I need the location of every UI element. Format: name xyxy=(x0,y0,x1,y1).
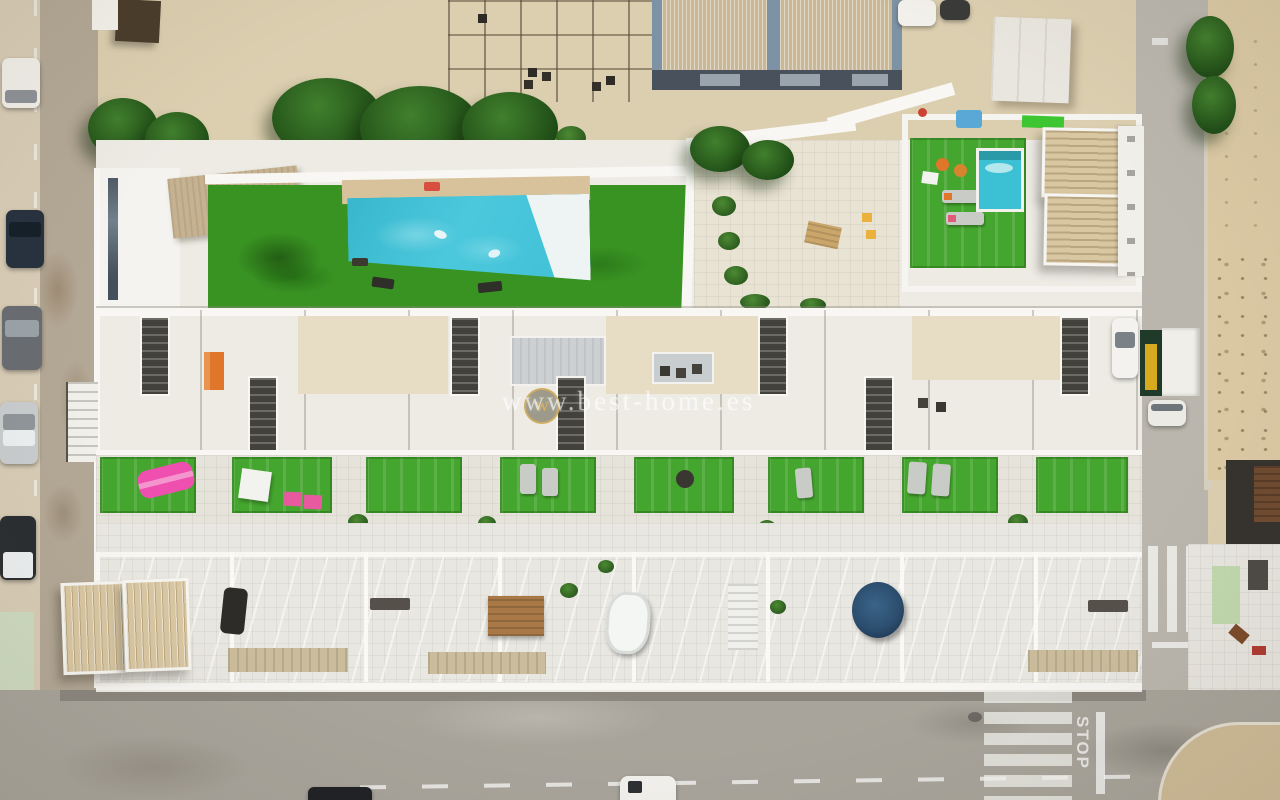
bench xyxy=(1088,600,1128,612)
sun-lounger xyxy=(542,468,558,496)
corner-lawn xyxy=(1212,566,1240,624)
orange-awning xyxy=(204,352,224,390)
terrace-shrub xyxy=(712,196,736,216)
trees-sand-edge xyxy=(1192,76,1236,134)
storage-box xyxy=(1028,650,1138,672)
sun-lounger xyxy=(520,464,536,494)
orange-pouf xyxy=(936,158,949,171)
storage-box xyxy=(228,648,348,672)
sidewalk-green-patch xyxy=(0,612,34,690)
red-towel xyxy=(424,182,440,191)
truck-cargo-yellow xyxy=(1145,344,1157,390)
patio-plant xyxy=(560,583,578,598)
blue-spa-pool xyxy=(852,582,904,638)
stairwell xyxy=(250,378,276,454)
roof-patio xyxy=(298,316,448,394)
complex-bottom-wall xyxy=(96,682,1142,690)
palm-shadow-on-lawn xyxy=(236,232,322,284)
car-windshield xyxy=(3,414,35,430)
car-sunroof xyxy=(628,781,642,793)
sun-lounger xyxy=(907,461,927,494)
van-by-building xyxy=(898,0,936,26)
building-door xyxy=(700,74,740,86)
building-roof-left xyxy=(662,0,767,70)
parked-car-two-tone xyxy=(0,516,36,580)
yellow-chair xyxy=(862,213,872,222)
parked-car-navy xyxy=(6,210,44,268)
car-windshield xyxy=(5,320,39,337)
corner-doorway xyxy=(1248,560,1268,590)
red-doormat xyxy=(1252,646,1266,655)
poolside-chair xyxy=(352,258,368,266)
lounger-cushion xyxy=(944,193,952,200)
manhole xyxy=(968,712,982,722)
small-pool-step xyxy=(979,151,1021,160)
trees-sand-edge xyxy=(1186,16,1234,78)
utility-strip xyxy=(1118,126,1144,276)
roof-patio xyxy=(912,316,1060,380)
white-pad xyxy=(921,171,939,185)
building-door xyxy=(852,74,888,86)
orange-pouf xyxy=(954,164,967,177)
truck-cab xyxy=(1148,400,1186,426)
motorbike xyxy=(220,587,249,635)
white-car-right xyxy=(1112,318,1138,378)
car-bottom-white xyxy=(620,776,676,800)
garden-turf xyxy=(768,457,864,513)
terrace-shrub xyxy=(724,266,748,285)
street-stairs xyxy=(68,382,98,462)
carport-pergola xyxy=(122,578,191,672)
stop-text: STOP xyxy=(1072,716,1092,770)
pool-float xyxy=(985,163,1013,173)
sun-lounger xyxy=(931,463,951,496)
building-door xyxy=(780,74,820,86)
kids-play-structure xyxy=(956,110,982,128)
van-windshield xyxy=(5,90,37,103)
car-roof xyxy=(3,430,35,446)
stairwell xyxy=(760,318,786,394)
truck xyxy=(1140,328,1202,426)
event-building xyxy=(652,0,902,90)
car-windshield xyxy=(9,222,41,237)
terrace-shrub xyxy=(718,232,740,250)
building-roof-right xyxy=(780,0,892,70)
sun-lounger xyxy=(795,467,814,498)
yellow-chair xyxy=(866,230,876,239)
terrace-tree xyxy=(742,140,794,180)
cafe-table xyxy=(478,14,487,23)
corner-wood-deck xyxy=(1254,466,1280,522)
dark-car-top xyxy=(940,0,970,20)
parked-car-gray xyxy=(2,306,42,370)
wooden-table-set xyxy=(488,596,544,636)
plaza-white-table xyxy=(92,0,118,30)
garden-pergola xyxy=(1041,127,1124,198)
sun-lounger xyxy=(946,212,984,225)
lounger-cushion xyxy=(948,215,956,222)
patio-plant xyxy=(770,600,786,614)
cafe-table xyxy=(528,68,537,77)
white-mattress xyxy=(238,468,272,502)
plaza-canopy-brown xyxy=(115,0,161,43)
carport-pergola xyxy=(60,581,127,675)
car-windshield xyxy=(1115,332,1135,348)
truck-box-white xyxy=(1162,328,1200,396)
garden-pergola xyxy=(1043,193,1126,266)
roof-table-set xyxy=(660,366,670,376)
stairwell xyxy=(1062,318,1088,394)
cafe-table xyxy=(606,76,615,85)
stairwell xyxy=(142,318,168,394)
roof-table-set xyxy=(918,398,928,408)
red-ball xyxy=(918,108,927,117)
roof-skylight xyxy=(108,178,118,300)
parked-van-white xyxy=(2,58,40,108)
fire-bowl xyxy=(676,470,694,488)
small-pool xyxy=(976,148,1024,212)
aerial-photo-residential-complex: STOP xyxy=(0,0,1280,800)
stop-road-marking: STOP xyxy=(1052,714,1112,772)
garden-turf xyxy=(1036,457,1128,513)
watermark: www.best-home.es xyxy=(502,386,755,417)
parked-car-silver xyxy=(0,402,38,464)
terrace-tree xyxy=(690,126,750,172)
stop-line-right xyxy=(1152,642,1192,648)
garden-turf xyxy=(366,457,462,513)
sun-lounger xyxy=(942,190,978,203)
sand-speckles-dense xyxy=(1208,250,1280,480)
stairwell xyxy=(866,378,892,454)
truck-windshield xyxy=(1151,404,1183,411)
storage-box xyxy=(428,652,546,674)
pink-loungers xyxy=(284,492,303,507)
patio-plant xyxy=(598,560,614,573)
car-bottom-dark xyxy=(308,787,372,800)
white-shed xyxy=(991,17,1072,104)
bench xyxy=(370,598,410,610)
car-bed-white xyxy=(3,552,33,578)
stairwell xyxy=(452,318,478,394)
white-slat-screen xyxy=(728,584,758,650)
road-arrow-marking xyxy=(1152,38,1168,45)
